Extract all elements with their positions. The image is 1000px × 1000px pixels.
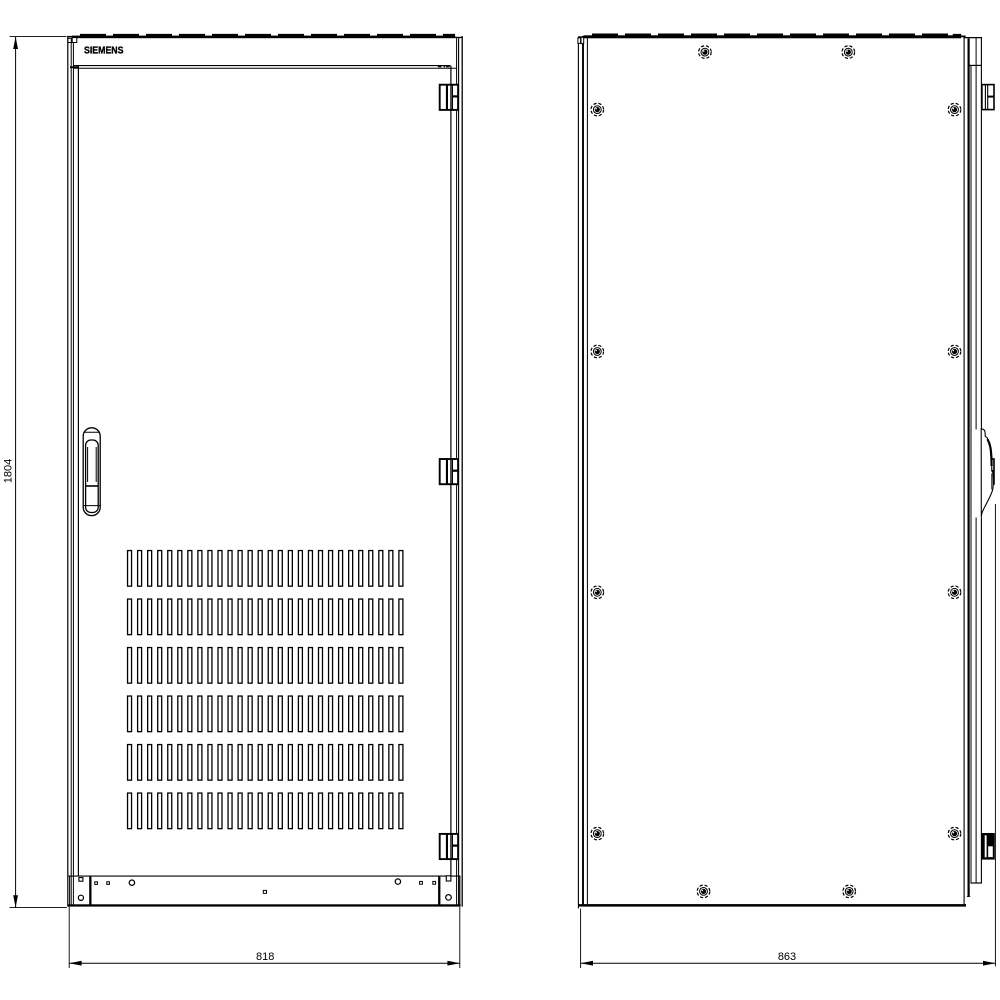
svg-text:SIEMENS: SIEMENS [84, 45, 124, 57]
svg-text:1804: 1804 [2, 459, 14, 483]
svg-text:818: 818 [256, 951, 274, 963]
svg-text:863: 863 [778, 951, 796, 963]
